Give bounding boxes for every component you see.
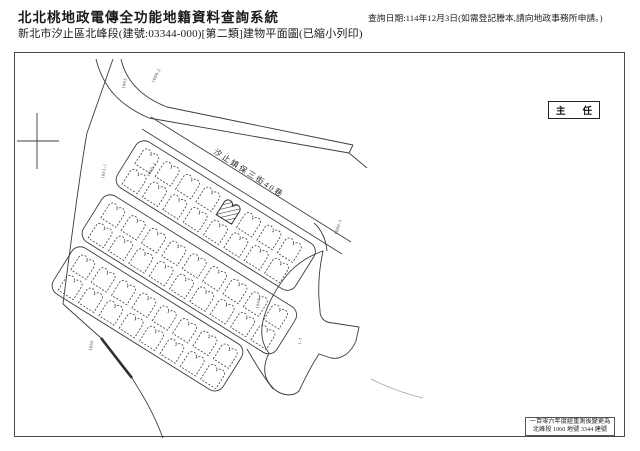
building-unit-footprint: [265, 257, 291, 283]
building-unit-footprint: [257, 224, 283, 250]
building-unit-footprint: [155, 160, 181, 186]
system-title: 北北桃地政電傳全功能地籍資料查詢系統: [18, 6, 279, 26]
building-unit-footprint: [108, 234, 134, 260]
building-unit-footprint: [223, 278, 249, 304]
building-unit-footprint: [203, 265, 229, 291]
parcel-number-label: 1060-3: [333, 219, 343, 235]
parcel-number-label: 1065: [88, 340, 94, 352]
band-outline: [112, 137, 319, 294]
building-unit-footprint: [170, 273, 196, 299]
building-unit-footprint: [129, 247, 155, 273]
building-unit-footprint: [173, 317, 199, 343]
building-unit-footprint: [163, 193, 189, 219]
building-unit-footprint: [149, 260, 175, 286]
document-subtitle: 新北市汐止區北峰段(建號:03344-000)[第二類]建物平面圖(已縮小列印): [18, 25, 363, 41]
building-unit-footprint: [162, 239, 188, 265]
building-unit-footprint: [231, 311, 257, 337]
building-unit-footprint: [204, 219, 230, 245]
irregular-parcel-boundary: [262, 251, 359, 395]
west-boundary-middle: [63, 133, 87, 304]
building-unit-footprint: [58, 274, 84, 300]
subject-building-unit: [216, 198, 242, 224]
parcel-number-label: 1064: [255, 298, 261, 310]
building-unit-footprint: [119, 312, 145, 338]
north-cross-icon: [17, 113, 59, 169]
housing-bands-group: [48, 137, 319, 395]
building-unit-footprint: [213, 342, 239, 368]
note-line-2: 北峰段 1060 地號 3344 建號: [526, 426, 614, 434]
lane-lower-edge: [142, 129, 342, 254]
west-boundary-bold-segment: [101, 338, 132, 378]
building-unit-footprint: [210, 298, 236, 324]
building-unit-footprint: [91, 266, 117, 292]
building-plan-map: 汐止鎮保三街40巷 10631060-21061-11060-11060-310…: [15, 53, 626, 438]
parcel-number-label: 1-7: [297, 337, 303, 345]
building-unit-footprint: [193, 330, 219, 356]
building-unit-footprint: [152, 304, 178, 330]
housing-band: [48, 243, 246, 395]
building-unit-footprint: [132, 291, 158, 317]
band-outline: [48, 243, 246, 395]
parcel-number-label: 1060-2: [150, 67, 161, 83]
building-unit-footprint: [101, 201, 127, 227]
building-unit-footprint: [251, 323, 277, 349]
cadastral-query-page: 北北桃地政電傳全功能地籍資料查詢系統 新北市汐止區北峰段(建號:03344-00…: [0, 0, 640, 451]
housing-band: [112, 137, 319, 294]
building-unit-footprint: [121, 214, 147, 240]
building-unit-footprint: [201, 363, 227, 389]
building-unit-footprint: [99, 299, 125, 325]
parcel-number-label: 1061-1: [100, 163, 108, 179]
building-unit-footprint: [122, 168, 148, 194]
building-unit-footprint: [160, 337, 186, 363]
building-unit-footprint: [88, 222, 114, 248]
road-north-inner-edge: [149, 118, 349, 153]
west-boundary-lower: [63, 304, 101, 338]
building-unit-footprint: [142, 180, 168, 206]
faint-contour-line: [371, 379, 423, 398]
building-unit-footprint: [224, 231, 250, 257]
query-date-info: 查詢日期:114年12月3日(如需登記謄本,請向地政事務所申請。): [368, 11, 603, 24]
building-unit-footprint: [196, 185, 222, 211]
supervisor-stamp-box: 主 任: [548, 101, 600, 119]
west-boundary-upper: [87, 59, 113, 133]
stamp-char-right: 任: [582, 103, 592, 117]
west-boundary-tail: [132, 378, 163, 438]
curved-road-edge-east: [121, 59, 167, 107]
building-unit-footprint: [182, 252, 208, 278]
building-unit-footprint: [71, 253, 97, 279]
building-unit-footprint: [237, 211, 263, 237]
remeasurement-note: 一百零六年度經重測後變更為 北峰段 1060 地號 3344 建號: [525, 417, 615, 436]
road-end-jog: [349, 145, 367, 168]
parcel-labels-group: 10631060-21061-11060-11060-3106410651-7: [88, 67, 343, 351]
building-unit-footprint: [244, 244, 270, 270]
building-unit-footprint: [142, 227, 168, 253]
parcel-number-label: 1060-1: [145, 161, 157, 177]
note-line-1: 一百零六年度經重測後變更為: [526, 418, 614, 426]
lane-end-curve: [314, 223, 327, 251]
building-unit-footprint: [78, 286, 104, 312]
building-unit-footprint: [277, 236, 303, 262]
parcel-number-label: 1063: [121, 77, 127, 89]
building-unit-footprint: [176, 173, 202, 199]
building-unit-footprint: [183, 206, 209, 232]
street-name-label: 汐止鎮保三街40巷: [212, 146, 286, 199]
stamp-char-left: 主: [556, 103, 566, 117]
plan-frame: 汐止鎮保三街40巷 10631060-21061-11060-11060-310…: [14, 52, 625, 437]
building-unit-footprint: [190, 285, 216, 311]
building-unit-footprint: [140, 325, 166, 351]
building-unit-footprint: [112, 279, 138, 305]
building-unit-footprint: [180, 350, 206, 376]
